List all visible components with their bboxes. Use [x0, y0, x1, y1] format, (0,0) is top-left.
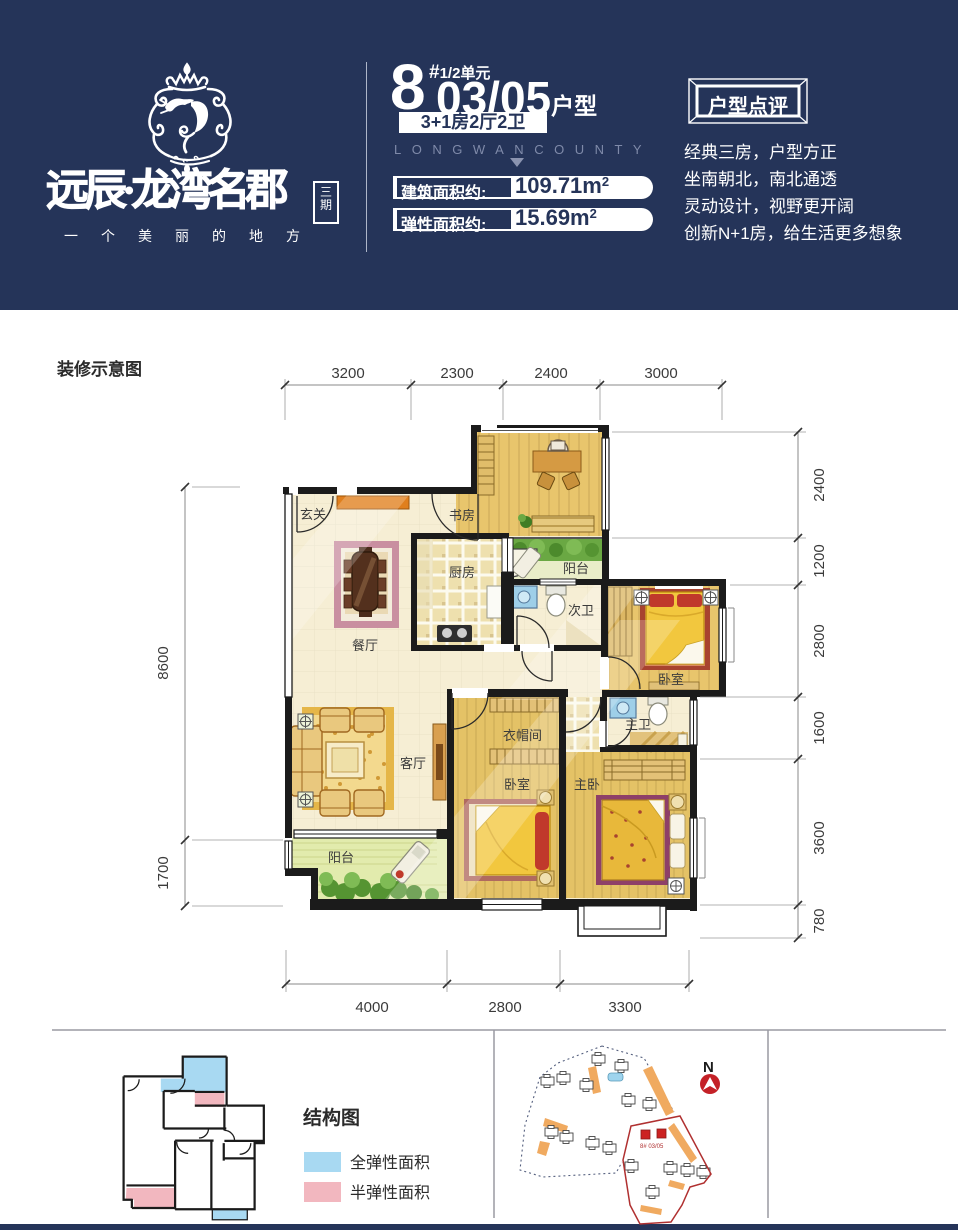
svg-text:3000: 3000 — [644, 365, 677, 382]
svg-text:装修示意图: 装修示意图 — [56, 359, 142, 379]
svg-text:厨房: 厨房 — [449, 565, 475, 580]
svg-text:阳台: 阳台 — [563, 561, 589, 576]
svg-text:主卫: 主卫 — [625, 717, 651, 732]
svg-text:半弹性面积: 半弹性面积 — [350, 1184, 430, 1202]
svg-text:8# 03/05: 8# 03/05 — [640, 1144, 664, 1150]
svg-text:衣帽间: 衣帽间 — [503, 728, 542, 743]
svg-text:结构图: 结构图 — [303, 1106, 360, 1129]
svg-text:3200: 3200 — [331, 365, 364, 382]
svg-text:玄关: 玄关 — [300, 507, 326, 522]
svg-text:2800: 2800 — [811, 624, 828, 657]
svg-text:N: N — [703, 1059, 714, 1076]
svg-text:客厅: 客厅 — [400, 756, 426, 771]
svg-text:2400: 2400 — [811, 468, 828, 501]
svg-text:1600: 1600 — [811, 711, 828, 744]
svg-text:1700: 1700 — [155, 856, 172, 889]
svg-text:卧室: 卧室 — [504, 777, 530, 792]
svg-text:全弹性面积: 全弹性面积 — [350, 1154, 430, 1172]
svg-text:餐厅: 餐厅 — [352, 638, 378, 653]
svg-text:卧室: 卧室 — [658, 672, 684, 687]
svg-text:次卫: 次卫 — [568, 603, 594, 618]
svg-text:主卧: 主卧 — [574, 777, 600, 792]
svg-text:1200: 1200 — [811, 544, 828, 577]
svg-text:2800: 2800 — [488, 999, 521, 1016]
svg-text:3300: 3300 — [608, 999, 641, 1016]
svg-text:4000: 4000 — [355, 999, 388, 1016]
svg-text:2400: 2400 — [534, 365, 567, 382]
svg-text:2300: 2300 — [440, 365, 473, 382]
svg-text:8600: 8600 — [155, 646, 172, 679]
svg-text:阳台: 阳台 — [328, 850, 354, 865]
svg-text:3600: 3600 — [811, 821, 828, 854]
svg-text:780: 780 — [811, 908, 828, 933]
svg-text:书房: 书房 — [449, 508, 475, 523]
